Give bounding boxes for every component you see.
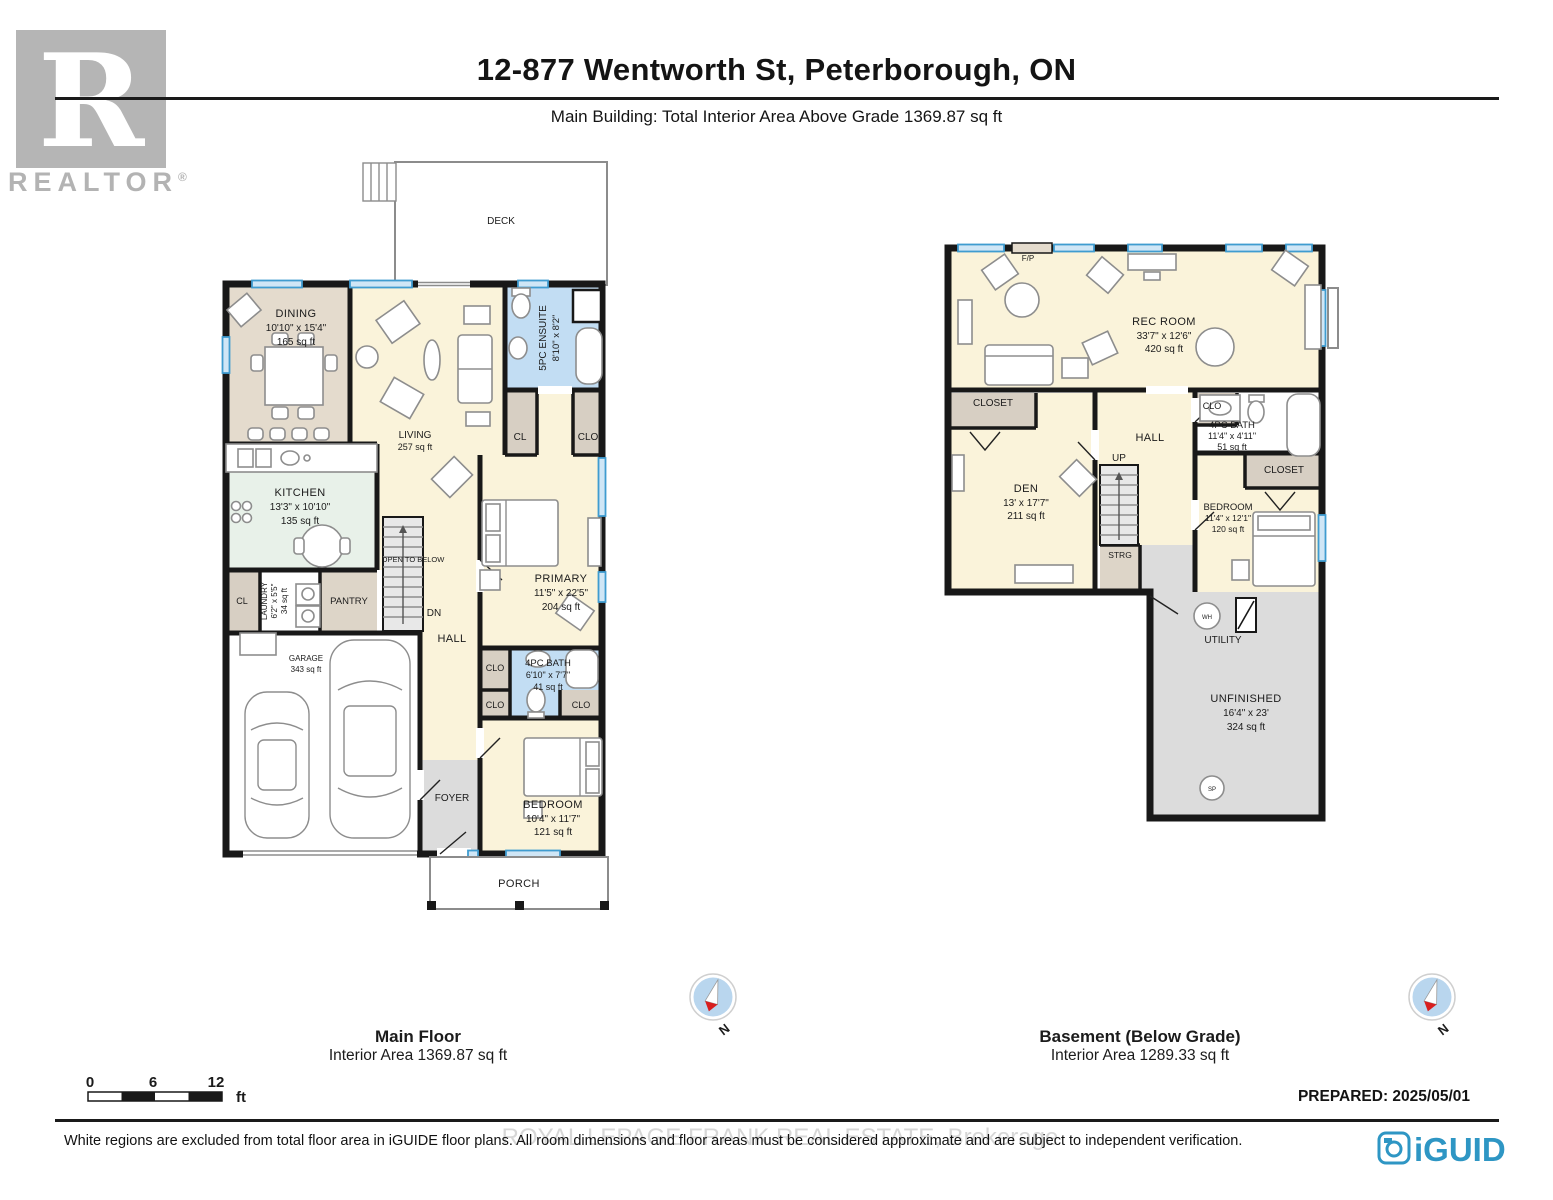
scale-unit: ft <box>236 1089 246 1106</box>
primary-dims: 11'5" x 22'5" <box>534 588 589 599</box>
header-divider <box>55 97 1499 100</box>
rec-room-label: REC ROOM <box>1132 316 1196 328</box>
den-label: DEN <box>1014 483 1038 495</box>
floor-plans-canvas: DECK DINING 10'10" x 15'4" 165 sq ft LIV… <box>0 0 1553 1200</box>
dining-area: 165 sq ft <box>277 337 316 348</box>
garage-label: GARAGE <box>289 654 323 663</box>
compass-main-floor: N <box>690 974 736 1038</box>
basement-hall-label: HALL <box>1135 432 1164 444</box>
scale-bar: 0 6 12 ft <box>86 1074 246 1106</box>
living-area: 257 sq ft <box>398 442 433 452</box>
primary-area: 204 sq ft <box>542 602 581 613</box>
ensuite-label: 5PC ENSUITE <box>538 305 549 371</box>
closet-left-label: CLOSET <box>973 398 1013 409</box>
main-floor-plan: DECK DINING 10'10" x 15'4" 165 sq ft LIV… <box>223 162 610 910</box>
disclaimer-text: White regions are excluded from total fl… <box>64 1133 1314 1149</box>
kitchen-label: KITCHEN <box>274 487 325 499</box>
foyer-label: FOYER <box>435 793 469 804</box>
bedroom-dims: 10'4" x 11'7" <box>526 814 581 825</box>
laundry-dims: 6'2" x 5'5" <box>270 583 279 618</box>
basement-area: Interior Area 1289.33 sq ft <box>1051 1047 1230 1064</box>
main-stairs-down <box>383 517 423 631</box>
ensuite-cl-label: CL <box>514 432 527 443</box>
floor-plan-page: R REALTOR® 12-877 Wentworth St, Peterbor… <box>0 0 1553 1200</box>
hall-label: HALL <box>437 633 466 645</box>
dn-label: DN <box>427 608 441 619</box>
deck-stairs <box>363 163 396 201</box>
kitchen-area: 135 sq ft <box>281 516 320 527</box>
basement-bedroom-dims: 11'4" x 12'1" <box>1205 513 1251 523</box>
pantry-label: PANTRY <box>330 596 368 607</box>
wh-label: WH <box>1202 615 1212 621</box>
main-floor-area: Interior Area 1369.87 sq ft <box>329 1047 508 1064</box>
main-floor-title: Main Floor <box>375 1027 461 1046</box>
porch-label: PORCH <box>498 878 540 890</box>
compass-n-label: N <box>716 1021 733 1039</box>
basement-bath-dims: 11'4" x 4'11" <box>1208 431 1256 441</box>
iguide-icon-lens <box>1387 1142 1401 1156</box>
cl-label: CL <box>236 596 248 606</box>
bedroom-clo-right-label: CLO <box>572 700 591 710</box>
rec-room-dims: 33'7" x 12'6" <box>1137 331 1192 342</box>
compass-basement: N <box>1409 974 1455 1038</box>
fp-label: F/P <box>1022 254 1034 263</box>
ensuite-dims: 8'10" x 8'2" <box>551 315 562 362</box>
primary-clo-label: CLO <box>578 432 599 443</box>
bath-dims: 6'10" x 7'7" <box>526 670 570 680</box>
strg-label: STRG <box>1108 550 1132 560</box>
unfinished-area: 324 sq ft <box>1227 722 1266 733</box>
basement-stairs-up <box>1100 465 1138 545</box>
laundry-area: 34 sq ft <box>280 587 289 614</box>
prepared-date: PREPARED: 2025/05/01 <box>1150 1088 1470 1106</box>
iguide-logo: iGUIDE <box>1376 1124 1506 1170</box>
basement-clo-label: CLO <box>1203 401 1222 411</box>
basement-bath-label: 4PC BATH <box>1209 420 1255 431</box>
closet-right-label: CLOSET <box>1264 465 1304 476</box>
den-dims: 13' x 17'7" <box>1003 498 1049 509</box>
basement-title: Basement (Below Grade) <box>1039 1027 1240 1046</box>
unfinished-dims: 16'4" x 23' <box>1223 708 1269 719</box>
kitchen-dims: 13'3" x 10'10" <box>270 502 331 513</box>
hall-clo-label: CLO <box>486 663 505 673</box>
bedroom-area: 121 sq ft <box>534 827 573 838</box>
scale-tick-0: 0 <box>86 1074 94 1091</box>
bedroom-label: BEDROOM <box>523 799 583 811</box>
bath-label: 4PC BATH <box>525 658 571 669</box>
iguide-wordmark: iGUIDE <box>1414 1131 1506 1168</box>
dining-label: DINING <box>276 308 317 320</box>
basement-plan: F/P REC ROOM 33'7" x 12'6" 420 sq ft CLO… <box>948 243 1338 818</box>
up-label: UP <box>1112 453 1126 464</box>
bath-area: 41 sq ft <box>533 682 563 692</box>
laundry-label: LAUNDRY <box>260 581 269 620</box>
bedroom-clo-left-label: CLO <box>486 700 505 710</box>
realtor-logo: R <box>14 28 174 173</box>
basement-bedroom-label: BEDROOM <box>1203 502 1252 513</box>
primary-label: PRIMARY <box>535 573 588 585</box>
scale-tick-12: 12 <box>208 1074 225 1091</box>
living-label: LIVING <box>399 430 432 441</box>
realtor-logo-r: R <box>38 28 146 173</box>
utility-label: UTILITY <box>1204 635 1242 646</box>
garage-area: 343 sq ft <box>291 665 322 674</box>
den-area: 211 sq ft <box>1007 511 1045 522</box>
compass-n-label: N <box>1435 1021 1452 1039</box>
dining-dims: 10'10" x 15'4" <box>266 323 327 334</box>
basement-bath-area: 51 sq ft <box>1217 442 1247 452</box>
open-to-below-label: OPEN TO BELOW <box>382 555 446 564</box>
footer-divider <box>55 1119 1499 1122</box>
unfinished-label: UNFINISHED <box>1210 693 1281 705</box>
rec-room-area: 420 sq ft <box>1145 344 1184 355</box>
sp-label: SP <box>1208 787 1216 793</box>
fireplace <box>1012 243 1052 253</box>
iguide-icon-frame <box>1379 1133 1409 1163</box>
basement-bedroom-area: 120 sq ft <box>1212 524 1245 534</box>
scale-tick-6: 6 <box>149 1074 157 1091</box>
deck-label: DECK <box>487 216 515 227</box>
